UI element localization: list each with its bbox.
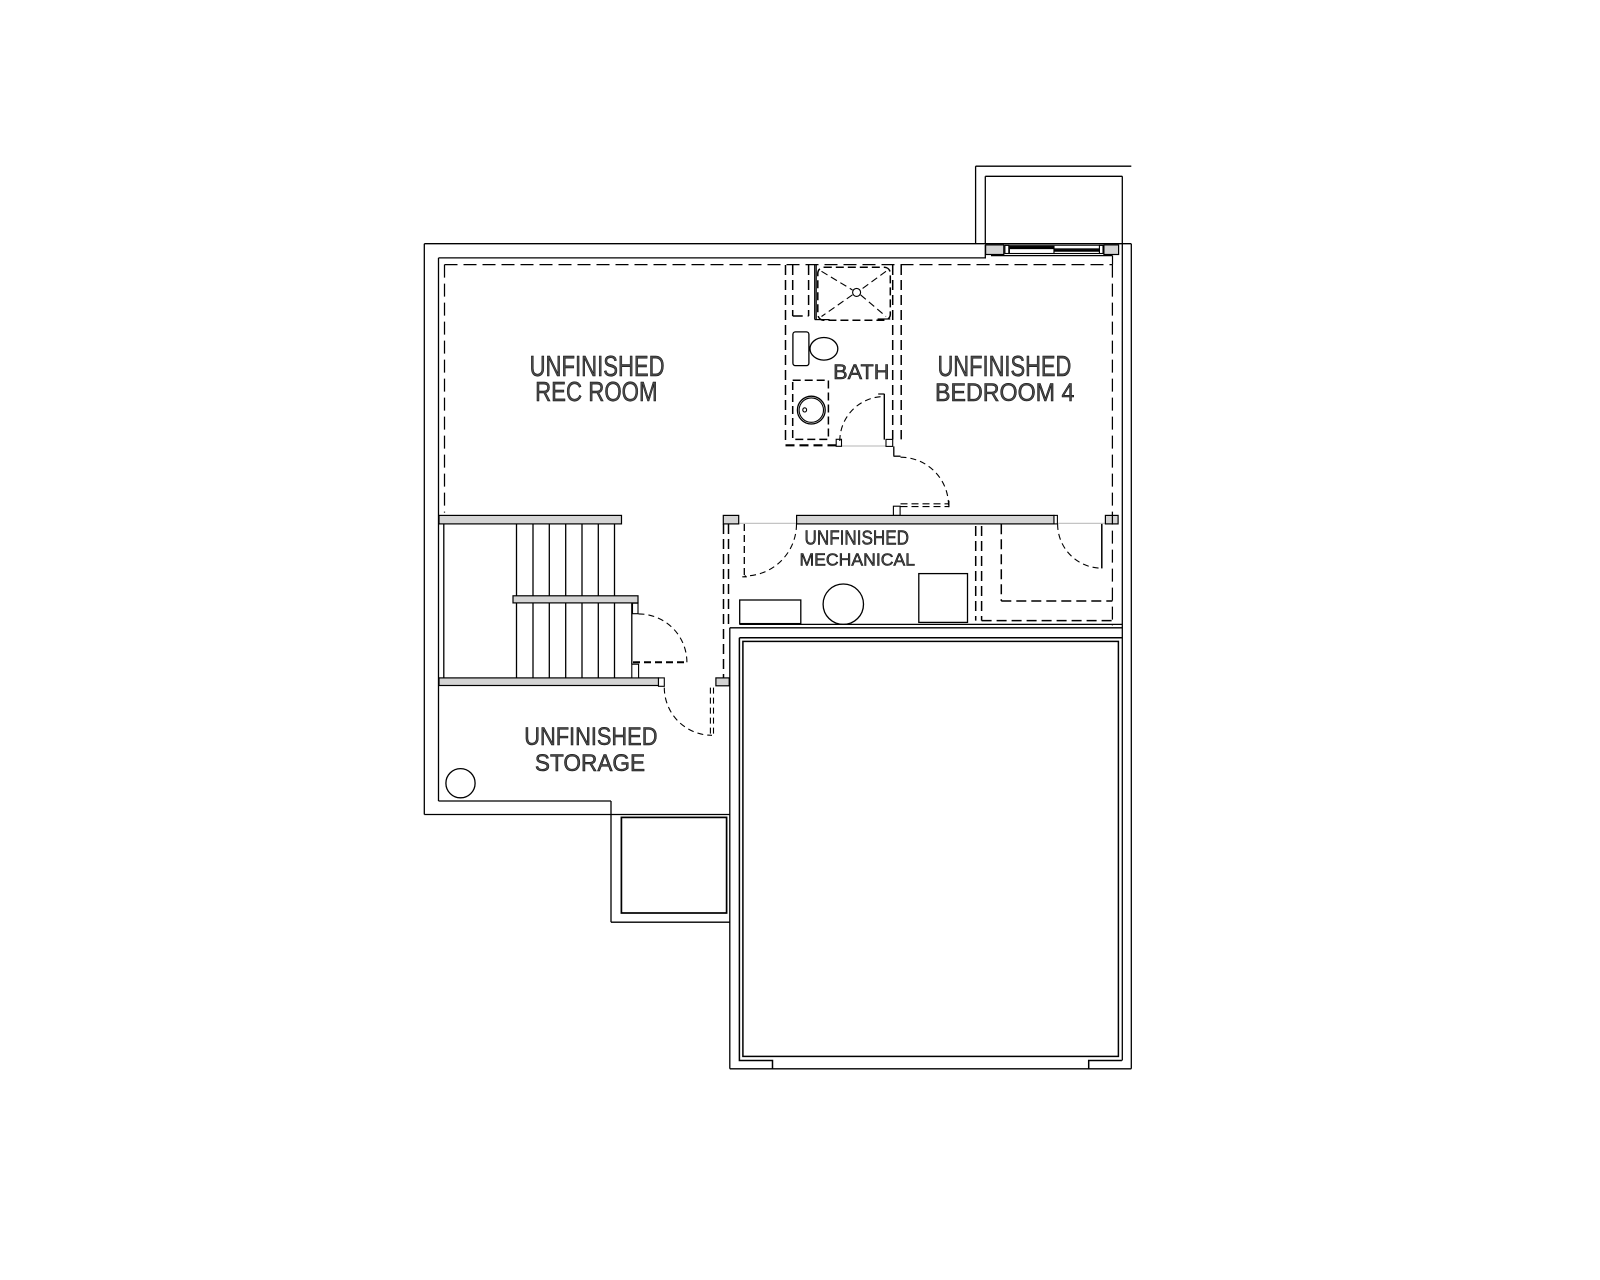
svg-text:BEDROOM 4: BEDROOM 4 bbox=[935, 379, 1074, 407]
svg-text:REC ROOM: REC ROOM bbox=[535, 376, 657, 407]
svg-text:BATH: BATH bbox=[833, 361, 889, 384]
svg-text:UNFINISHED: UNFINISHED bbox=[524, 723, 657, 751]
svg-text:UNFINISHED: UNFINISHED bbox=[938, 351, 1072, 383]
svg-text:MECHANICAL: MECHANICAL bbox=[800, 550, 916, 570]
svg-text:UNFINISHED: UNFINISHED bbox=[805, 528, 910, 550]
svg-text:STORAGE: STORAGE bbox=[535, 750, 645, 777]
